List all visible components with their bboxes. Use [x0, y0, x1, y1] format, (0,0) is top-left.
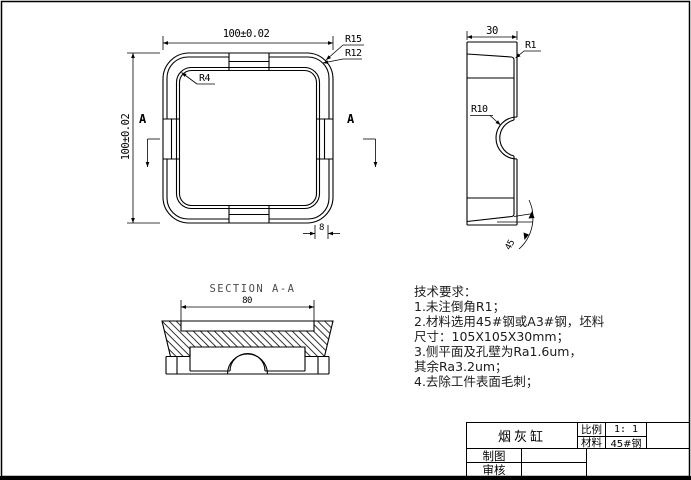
drawn-by-label: 制图: [467, 449, 522, 463]
radius-label-r15: R15: [345, 35, 362, 45]
top-view-linework: [163, 53, 333, 223]
drawing-sheet: 100±0.02 100±0.02 R15 R12 R4 A A 8 30 R1…: [0, 0, 691, 480]
side-view-dimensions: [467, 31, 541, 249]
top-view-height-dimension: 100±0.02: [121, 107, 133, 167]
side-view-depth-dimension: 30: [482, 26, 502, 37]
tech-req-line-2: 2.材料选用45#钢或A3#钢，坯料: [414, 311, 604, 326]
tech-req-line-1: 1.未注倒角R1；: [414, 296, 604, 311]
tech-req-line-6: 4.去除工件表面毛刺；: [414, 371, 604, 386]
title-block: 烟灰缸 比例 1: 1 材料 45#钢 制图 审核: [466, 422, 690, 477]
radius-label-r12: R12: [345, 49, 362, 59]
scale-label: 比例: [578, 423, 606, 437]
section-view-title: SECTION A-A: [200, 284, 305, 295]
technical-requirements: 技术要求： 1.未注倒角R1； 2.材料选用45#钢或A3#钢，坯料 尺寸：10…: [414, 281, 604, 386]
cad-linework: [0, 0, 691, 480]
radius-label-r4: R4: [199, 74, 210, 84]
material-label: 材料: [578, 437, 606, 449]
scale-value: 1: 1: [606, 423, 647, 437]
section-mark-a-left: A: [139, 113, 146, 125]
tech-req-line-4: 3.侧平面及孔壁为Ra1.6um，: [414, 341, 604, 356]
section-view-linework: [162, 321, 333, 374]
tech-req-title: 技术要求：: [414, 281, 604, 296]
radius-label-r10: R10: [471, 105, 488, 115]
checked-by-label: 审核: [467, 463, 522, 477]
radius-label-r1: R1: [525, 41, 536, 51]
sheet-border: [0, 2, 691, 480]
checked-by-value: [522, 463, 587, 477]
material-value: 45#钢: [606, 437, 647, 449]
part-name: 烟灰缸: [467, 423, 578, 449]
side-view-linework: [467, 42, 517, 225]
top-view-width-dimension: 100±0.02: [216, 29, 276, 40]
drawn-by-value: [522, 449, 587, 463]
rim-width-dimension: 8: [315, 224, 328, 233]
title-block-empty-bottom-right: [587, 449, 690, 477]
title-block-empty-top-right: [647, 423, 690, 449]
section-inner-width-dimension: 80: [236, 297, 258, 306]
section-mark-a-right: A: [347, 113, 354, 125]
